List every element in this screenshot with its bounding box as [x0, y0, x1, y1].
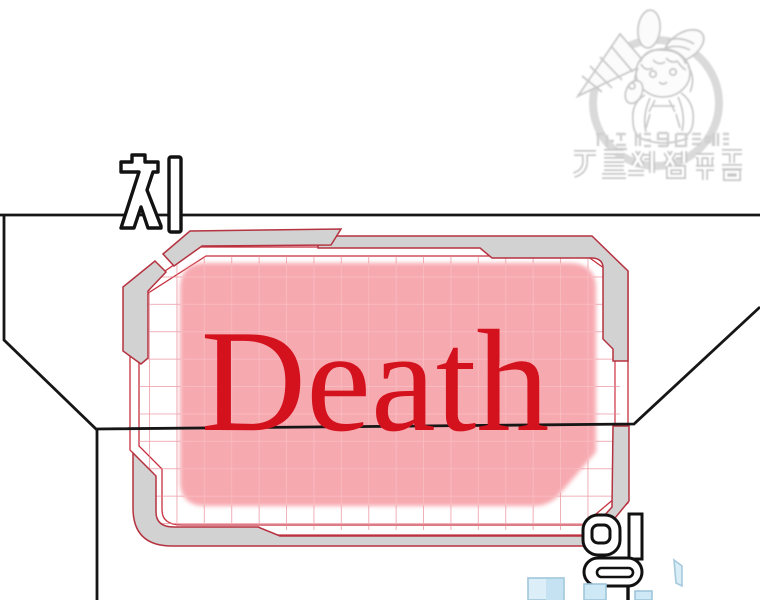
svg-text:Death: Death [201, 300, 550, 462]
